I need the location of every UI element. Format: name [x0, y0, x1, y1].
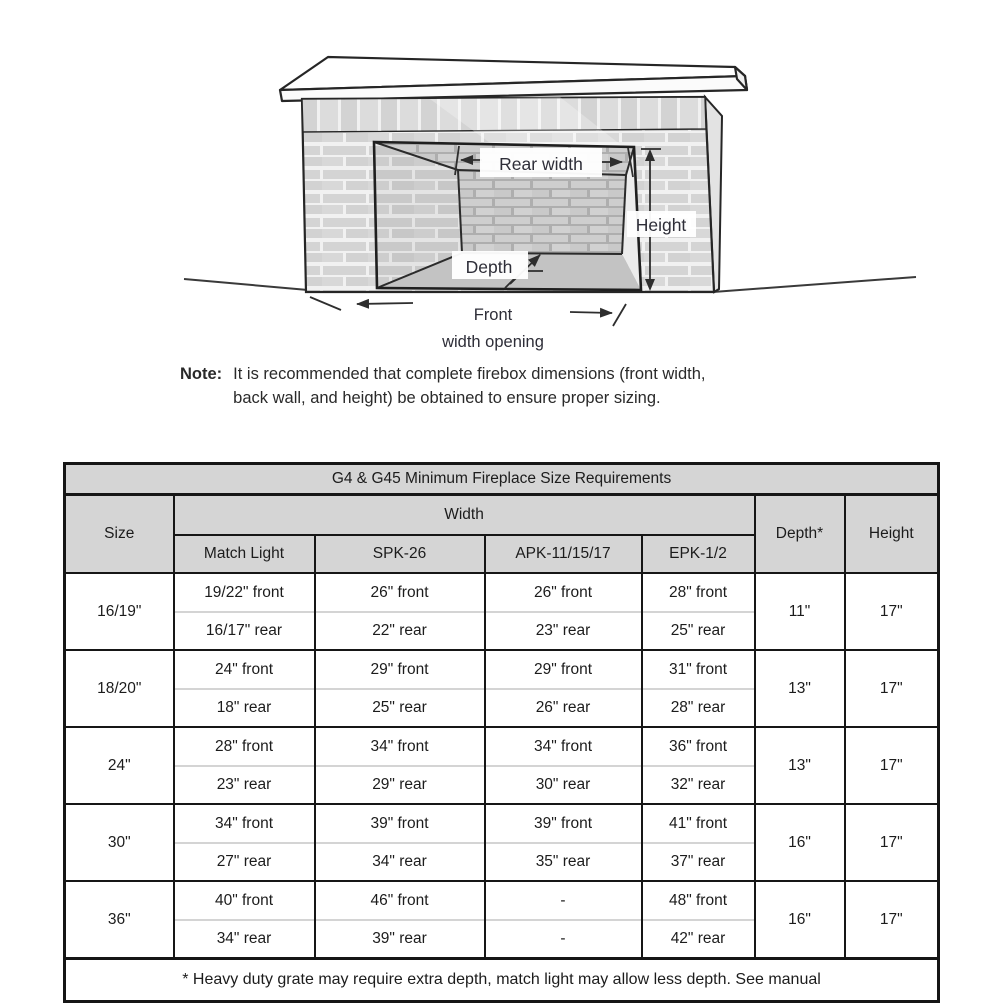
cell-spk26: 26" front22" rear — [315, 573, 485, 650]
col-header-epk: EPK-1/2 — [642, 535, 755, 573]
fireplace-size-table: G4 & G45 Minimum Fireplace Size Requirem… — [63, 462, 940, 1003]
col-header-spk26: SPK-26 — [315, 535, 485, 573]
cell-depth: 13" — [755, 727, 845, 804]
table-row: 24" 28" front23" rear 34" front29" rear … — [65, 727, 939, 804]
cell-apk: 29" front26" rear — [485, 650, 642, 727]
cell-epk: 31" front28" rear — [642, 650, 755, 727]
col-header-apk: APK-11/15/17 — [485, 535, 642, 573]
note-line2: back wall, and height) be obtained to en… — [233, 389, 660, 407]
cell-match-light: 34" front27" rear — [174, 804, 315, 881]
col-header-match-light: Match Light — [174, 535, 315, 573]
cell-spk26: 46" front39" rear — [315, 881, 485, 959]
table-row: 16/19" 19/22" front16/17" rear 26" front… — [65, 573, 939, 650]
table-row: 30" 34" front27" rear 39" front34" rear … — [65, 804, 939, 881]
cell-height: 17" — [845, 650, 939, 727]
note-block: Note: It is recommended that complete fi… — [180, 363, 840, 411]
cell-epk: 28" front25" rear — [642, 573, 755, 650]
table-title-row: G4 & G45 Minimum Fireplace Size Requirem… — [65, 464, 939, 495]
cell-spk26: 39" front34" rear — [315, 804, 485, 881]
cell-apk: 39" front35" rear — [485, 804, 642, 881]
front-width-label-line2: width opening — [441, 333, 544, 351]
cell-apk: 34" front30" rear — [485, 727, 642, 804]
cell-height: 17" — [845, 573, 939, 650]
cell-depth: 11" — [755, 573, 845, 650]
cell-match-light: 40" front34" rear — [174, 881, 315, 959]
cell-size: 24" — [65, 727, 174, 804]
mantel-shelf — [280, 57, 747, 101]
cell-depth: 13" — [755, 650, 845, 727]
cell-height: 17" — [845, 881, 939, 959]
table-header-row: Size Width Depth* Height — [65, 495, 939, 536]
cell-epk: 48" front42" rear — [642, 881, 755, 959]
note-label: Note: — [180, 363, 222, 411]
table-row: 36" 40" front34" rear 46" front39" rear … — [65, 881, 939, 959]
note-line1: It is recommended that complete firebox … — [233, 365, 705, 383]
cell-spk26: 29" front25" rear — [315, 650, 485, 727]
page: { "colors":{"header_bg":"#d5d5d5","table… — [0, 0, 1000, 1001]
rear-width-label: Rear width — [499, 154, 583, 174]
note-text: It is recommended that complete firebox … — [233, 363, 705, 411]
cell-depth: 16" — [755, 804, 845, 881]
col-header-size: Size — [65, 495, 174, 574]
cell-match-light: 19/22" front16/17" rear — [174, 573, 315, 650]
col-header-height: Height — [845, 495, 939, 574]
table-title: G4 & G45 Minimum Fireplace Size Requirem… — [65, 464, 939, 495]
cell-size: 18/20" — [65, 650, 174, 727]
height-label: Height — [636, 215, 687, 235]
cell-height: 17" — [845, 804, 939, 881]
table-footnote-row: * Heavy duty grate may require extra dep… — [65, 959, 939, 1002]
cell-epk: 41" front37" rear — [642, 804, 755, 881]
col-header-width: Width — [174, 495, 755, 536]
cell-match-light: 28" front23" rear — [174, 727, 315, 804]
front-width-label-line1: Front — [474, 306, 513, 324]
cell-size: 16/19" — [65, 573, 174, 650]
front-width-dimension — [310, 297, 626, 326]
cell-size: 30" — [65, 804, 174, 881]
cell-apk: 26" front23" rear — [485, 573, 642, 650]
depth-label: Depth — [466, 257, 513, 277]
table-row: 18/20" 24" front18" rear 29" front25" re… — [65, 650, 939, 727]
cell-spk26: 34" front29" rear — [315, 727, 485, 804]
cell-depth: 16" — [755, 881, 845, 959]
table-footnote: * Heavy duty grate may require extra dep… — [65, 959, 939, 1002]
cell-match-light: 24" front18" rear — [174, 650, 315, 727]
col-header-depth: Depth* — [755, 495, 845, 574]
cell-apk: -- — [485, 881, 642, 959]
cell-height: 17" — [845, 727, 939, 804]
cell-size: 36" — [65, 881, 174, 959]
cell-epk: 36" front32" rear — [642, 727, 755, 804]
